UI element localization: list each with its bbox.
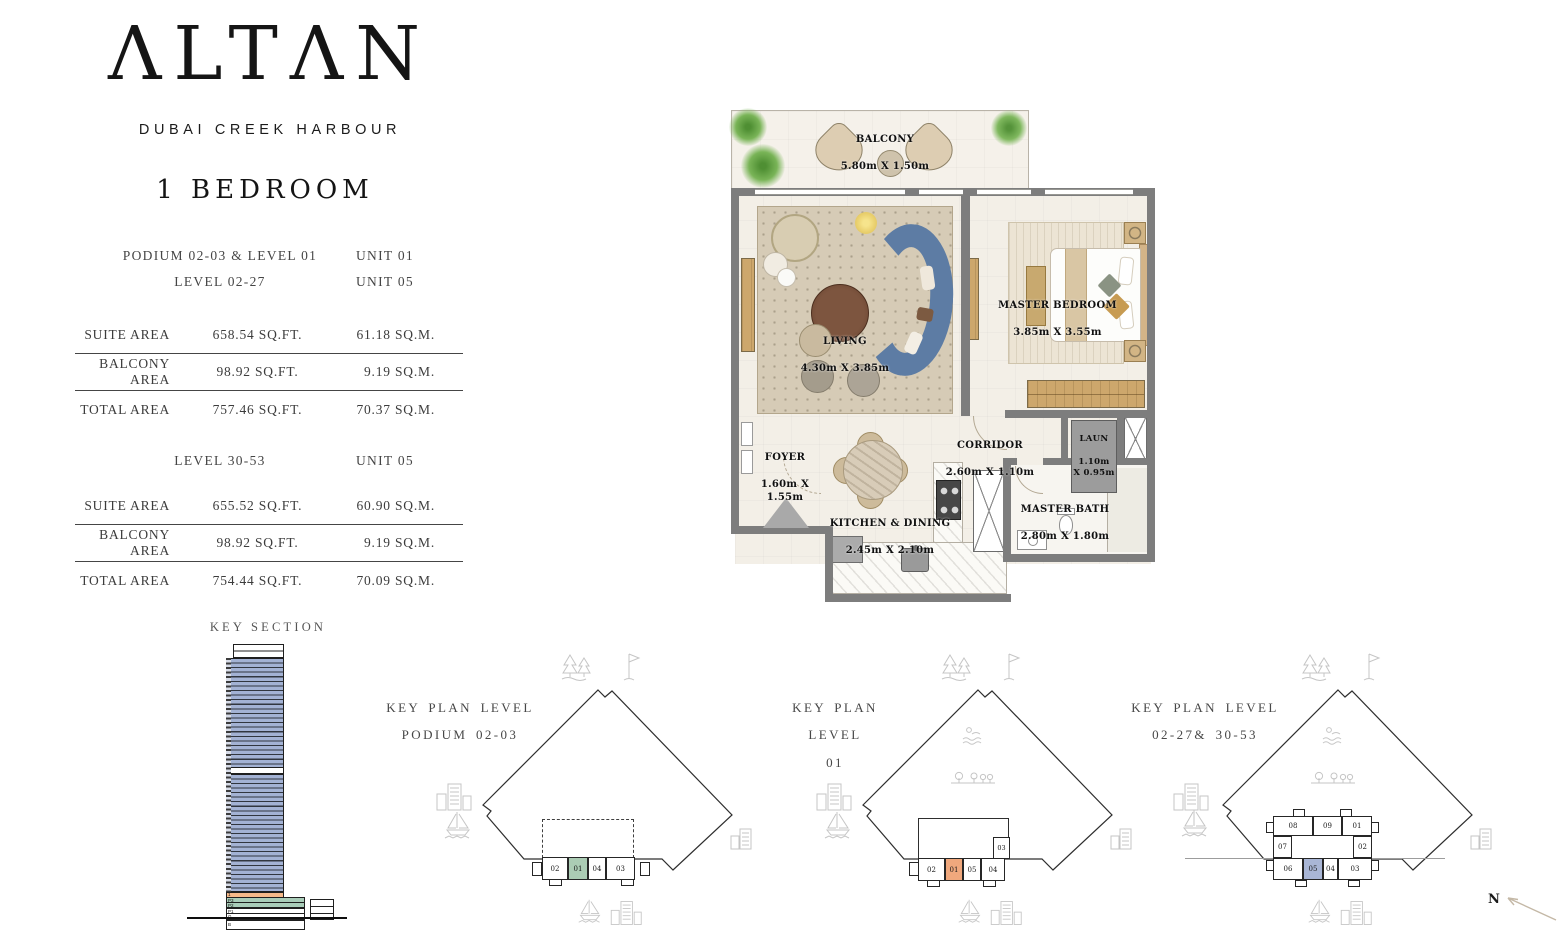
room-dims: 2.45m X 2.10m [810,544,970,557]
key-plan-tower: KEY PLAN LEVEL 02-27& 30-53 [1125,652,1505,934]
wall-living-bedroom [961,194,970,416]
site-outline [480,682,740,922]
wall-laundry-east [1117,412,1124,462]
unit-cell-04: 04 [1323,858,1338,880]
window [755,189,905,195]
unit-cell-02: 02 [918,858,945,881]
window [977,189,1031,195]
strip-tab [1371,860,1379,871]
room-label-kitchen: KITCHEN & DINING 2.45m X 2.10m [810,504,970,570]
unit-cell-03: 03 [1338,858,1372,880]
strip-tab [532,862,542,876]
area-label: SUITE AREA [75,327,170,343]
room-dims: 3.85m X 3.55m [975,326,1140,339]
floor-label-p1: P1 [228,909,234,914]
floor-plan: BALCONY 5.80m X 1.50m LIVING 4.30m X 3.8… [705,100,1205,620]
table-row: BALCONY AREA 98.92 SQ.FT. 9.19 SQ.M. [75,525,463,562]
room-name: BALCONY [785,133,985,146]
basement-floor [226,920,305,930]
sailboat-icon [823,810,853,840]
north-arrow-icon [1500,890,1558,924]
pool-icon [961,726,987,746]
floor-label-p2: P2 [228,903,234,908]
buildings-icon [609,898,647,928]
table-row: TOTAL AREA 757.46 SQ.FT. 70.37 SQ.M. [75,391,463,428]
golf-flag-icon [1003,652,1021,684]
unit-cell-02: 02 [542,857,568,880]
room-dims: 4.30m X 3.85m [765,362,925,375]
area-label: SUITE AREA [75,498,170,514]
sailboat-icon [577,898,603,924]
area-sqft: 655.52 SQ.FT. [170,498,345,514]
room-dims: 1.10m X 0.95m [1072,457,1116,479]
room-label-balcony: BALCONY 5.80m X 1.50m [785,120,985,186]
sailboat-icon [443,810,473,840]
area-sqm: 70.09 SQ.M. [345,573,463,589]
trees-icon [560,652,600,682]
strip-tab [621,879,634,886]
room-name: MASTER BEDROOM [975,299,1140,312]
floor-number-strip [226,658,231,892]
table-row: SUITE AREA 655.52 SQ.FT. 60.90 SQ.M. [75,488,463,525]
brand-subtitle: DUBAI CREEK HARBOUR [100,122,440,138]
room-label-corridor: CORRIDOR 2.60m X 1.10m [930,426,1050,492]
wardrobe-line [1028,394,1144,395]
area-sqm: 70.37 SQ.M. [345,402,463,418]
room-name: FOYER [745,451,825,464]
unit-cell-03: 03 [993,837,1010,859]
room-dims: 1.60m X 1.55m [745,478,825,504]
area-sqft: 757.46 SQ.FT. [170,402,345,418]
area-sqm: 61.18 SQ.M. [345,327,463,343]
wall-left [731,188,739,534]
north-label: N [1488,892,1500,907]
floor-label-b: B [228,922,231,927]
building-icon [1469,826,1495,852]
golf-flag-icon [623,652,641,684]
pillow [1118,256,1135,285]
level-label: PODIUM 02-03 & LEVEL 01 [105,248,335,264]
room-label-laundry: LAUN 1.10m X 0.95m [1071,420,1117,493]
room-name: LIVING [765,335,925,348]
unit-cell-03: 03 [606,857,635,880]
page-title: 1 BEDROOM [100,175,430,205]
strip-tab [640,862,650,876]
buildings-icon [989,898,1027,928]
balcony-door [919,189,963,195]
pool-icon [1321,726,1347,746]
room-dims: 2.60m X 1.10m [930,466,1050,479]
plant-icon [729,108,767,146]
unit-cell-08: 08 [1273,816,1313,836]
tower-upper-floors [226,658,284,768]
tower-lower-floors [226,774,284,892]
strip-tab [927,880,940,887]
unit-cell-05-highlighted: 05 [1303,858,1323,880]
unit-cell-04: 04 [588,857,606,880]
trees-icon [940,652,980,682]
dining-table [843,440,903,500]
waterfront-icons [957,898,1027,928]
wall-bedroom-south [1005,410,1155,418]
strip-tab [1295,880,1307,887]
area-table-1: SUITE AREA 658.54 SQ.FT. 61.18 SQ.M. BAL… [75,317,463,428]
buildings-icon [435,780,477,814]
unit-cell-09: 09 [1313,816,1342,836]
wall-kitchen-bottom [825,594,1011,602]
unit-cell-02: 02 [1353,836,1372,858]
area-sqm: 60.90 SQ.M. [345,498,463,514]
area-label: BALCONY AREA [75,527,170,559]
table-row: TOTAL AREA 754.44 SQ.FT. 70.09 SQ.M. [75,562,463,599]
floor-lamp [855,212,877,234]
nightstand [1124,222,1146,244]
unit-cell-01-highlighted: 01 [945,858,963,881]
area-sqm: 9.19 SQ.M. [345,535,463,551]
room-name: LAUN [1072,434,1116,445]
tower-mech-floor [226,767,284,774]
unit-cell-01: 01 [1342,816,1372,836]
location-row: LEVEL 02-27 UNIT 05 [105,269,450,295]
area-label: TOTAL AREA [75,573,170,589]
podium-outline-dashed [542,819,634,858]
brochure-page: ΛLTΛN DUBAI CREEK HARBOUR 1 BEDROOM PODI… [0,0,1562,934]
building-icon [729,826,755,852]
unit-label: UNIT 05 [335,274,435,290]
trees-icon [1300,652,1340,682]
sailboat-icon [957,898,983,924]
room-name: MASTER BATH [1000,503,1130,516]
location-row: PODIUM 02-03 & LEVEL 01 UNIT 01 [105,243,450,269]
tower-crown [233,644,284,658]
wall-right [1147,188,1155,562]
area-sqft: 658.54 SQ.FT. [170,327,345,343]
garden-icon [1309,770,1357,786]
golf-flag-icon [1363,652,1381,684]
area-sqft: 98.92 SQ.FT. [170,364,345,380]
wall-laundry-west [1061,412,1068,462]
area-table-2: SUITE AREA 655.52 SQ.FT. 60.90 SQ.M. BAL… [75,488,463,599]
key-plan-level-01: KEY PLAN LEVEL 01 [765,652,1135,934]
area-label: TOTAL AREA [75,402,170,418]
room-label-master-bedroom: MASTER BEDROOM 3.85m X 3.55m [975,286,1140,352]
waterfront-icons [577,898,647,928]
unit-cell-06: 06 [1273,858,1303,880]
room-dims: 2.80m X 1.80m [1000,530,1130,543]
area-sqft: 754.44 SQ.FT. [170,573,345,589]
area-sqft: 98.92 SQ.FT. [170,535,345,551]
area-label: BALCONY AREA [75,356,170,388]
level-label: LEVEL 30-53 [105,453,335,469]
unit-cell-05: 05 [963,858,981,881]
sofa-pillow [916,307,934,323]
wardrobe [1027,380,1145,408]
key-plan-podium: KEY PLAN LEVEL PODIUM 02-03 [385,652,755,934]
plant-icon [991,110,1027,146]
waterfront-icons [1307,898,1377,928]
room-dims: 5.80m X 1.50m [785,160,985,173]
window [1045,189,1133,195]
strip-tab [1348,880,1360,887]
brand-logo: ΛLTΛN [100,16,440,94]
strip-tab [983,880,996,887]
unit-cell-04: 04 [981,858,1005,881]
side-table [777,268,796,287]
floor-label-1: 1 [228,892,231,897]
location-row: LEVEL 30-53 UNIT 05 [105,448,450,474]
room-label-master-bath: MASTER BATH 2.80m X 1.80m [1000,490,1130,556]
unit-label: UNIT 01 [335,248,435,264]
plant-icon [741,144,785,188]
garden-icon [949,770,997,786]
strip-tab [1371,822,1379,833]
area-sqm: 9.19 SQ.M. [345,364,463,380]
level-label: LEVEL 02-27 [105,274,335,290]
room-name: KITCHEN & DINING [810,517,970,530]
room-name: CORRIDOR [930,439,1050,452]
room-label-living: LIVING 4.30m X 3.85m [765,322,925,388]
table-row: SUITE AREA 658.54 SQ.FT. 61.18 SQ.M. [75,317,463,354]
unit-label: UNIT 05 [335,453,435,469]
ground-line [187,917,347,920]
shaft-x [1124,416,1147,462]
key-section-title: KEY SECTION [178,620,358,635]
unit-cell-01-highlighted: 01 [568,857,588,880]
strip-tab [549,879,562,886]
compass: N [1460,884,1560,930]
unit-cell-07: 07 [1273,836,1292,858]
buildings-icon [815,780,857,814]
sailboat-icon [1307,898,1333,924]
table-row: BALCONY AREA 98.92 SQ.FT. 9.19 SQ.M. [75,354,463,391]
buildings-icon [1339,898,1377,928]
sailboat-icon [1180,808,1210,838]
tv-console [741,258,755,352]
